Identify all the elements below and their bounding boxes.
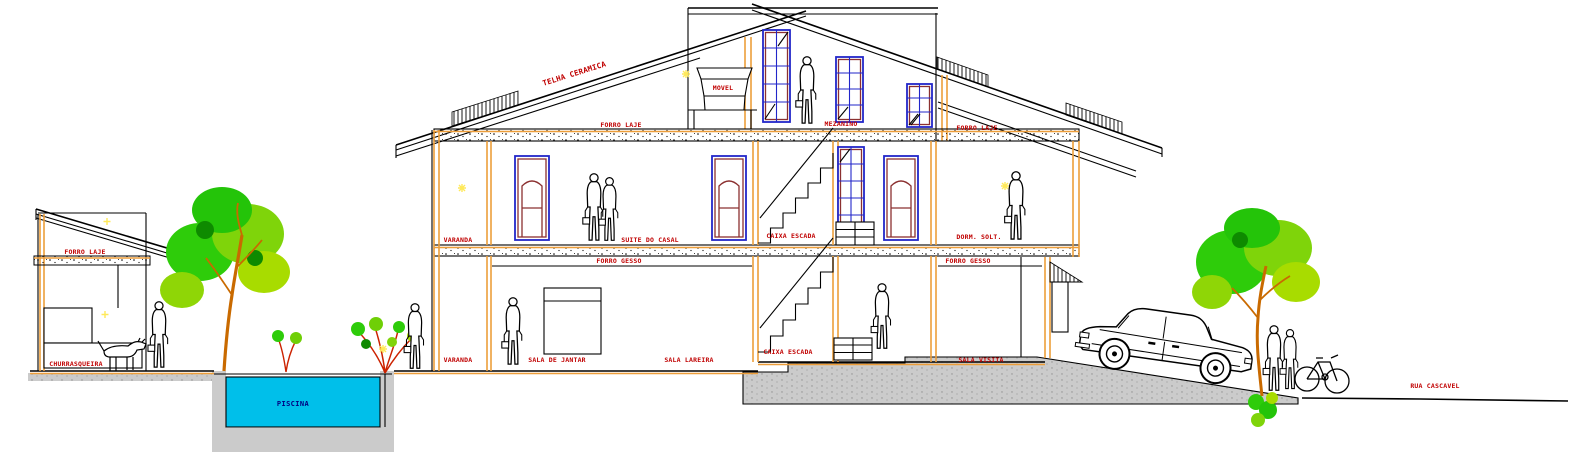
drawing-canvas: TELHA CERAMICA MOVEL FORRO LAJE MEZANINO… [0,0,1570,452]
stairs-middle-to-attic [758,128,833,243]
attic-window-1 [763,30,790,122]
label-attic-slab-left: FORRO LAJE [600,121,641,129]
person-bedroom [1005,172,1025,239]
stair-balustrade-ground [834,338,872,360]
person-attic [796,57,816,123]
label-mezzanine: MEZANINO [825,120,858,128]
bicycle [1295,355,1349,393]
left-tree [160,187,290,371]
door-suite-left [515,156,549,240]
label-sitting-room: SALA VISITA [958,356,1003,364]
label-stairwell-middle: CAIXA ESCADA [766,232,815,240]
flat-roof-band [688,8,938,14]
door-bedroom [884,156,918,240]
middle-floor-slab [434,245,1079,256]
attic-window-3 [907,84,932,127]
stained-window-middle [838,147,864,233]
street-line [1302,398,1568,401]
right-awning [1050,262,1082,282]
shrub-small-left [272,330,302,372]
stair-balustrade-middle [836,222,874,245]
attic-table-furniture [688,68,757,129]
right-pier [1052,282,1068,332]
person-ground-left [502,298,522,364]
label-pool: PISCINA [277,400,310,408]
label-balcony-middle: VARANDA [444,236,473,244]
label-fireplace-room: SALA LAREIRA [664,356,713,364]
label-street: RUA CASCAVEL [1410,382,1459,390]
label-bbq-area: CHURRASQUEIRA [49,360,102,368]
people-street [1263,326,1298,391]
person-ground-stairs [871,284,890,349]
label-stairwell-ground: CAIXA ESCADA [763,348,812,356]
label-roof-tile: TELHA CERAMICA [541,59,607,88]
label-attic-slab-right: FORRO LAJE [956,124,997,132]
annex-left-wall [38,214,44,371]
label-balcony-ground: VARANDA [444,356,473,364]
right-roof-hatch-upper [937,57,988,87]
couple-suite [583,174,618,241]
door-suite-right [712,156,746,240]
label-dining-room: SALA DE JANTAR [528,356,586,364]
label-plaster-ceiling-left: FORRO GESSO [596,257,641,265]
label-attic-furniture: MOVEL [713,84,734,92]
label-plaster-ceiling-right: FORRO GESSO [945,257,990,265]
person-annex [148,302,168,367]
headlight [1080,332,1090,338]
fireplace-cabinet [544,288,601,354]
label-master-suite: SUITE DO CASAL [621,236,679,244]
taillight [1244,358,1252,364]
label-single-bedroom: DORM. SOLT. [956,233,1001,241]
label-annex-slab: FORRO LAJE [64,248,105,256]
cad-section-drawing: TELHA CERAMICA MOVEL FORRO LAJE MEZANINO… [0,0,1570,452]
right-tree-trunk [1257,266,1266,396]
attic-window-2 [836,57,863,122]
